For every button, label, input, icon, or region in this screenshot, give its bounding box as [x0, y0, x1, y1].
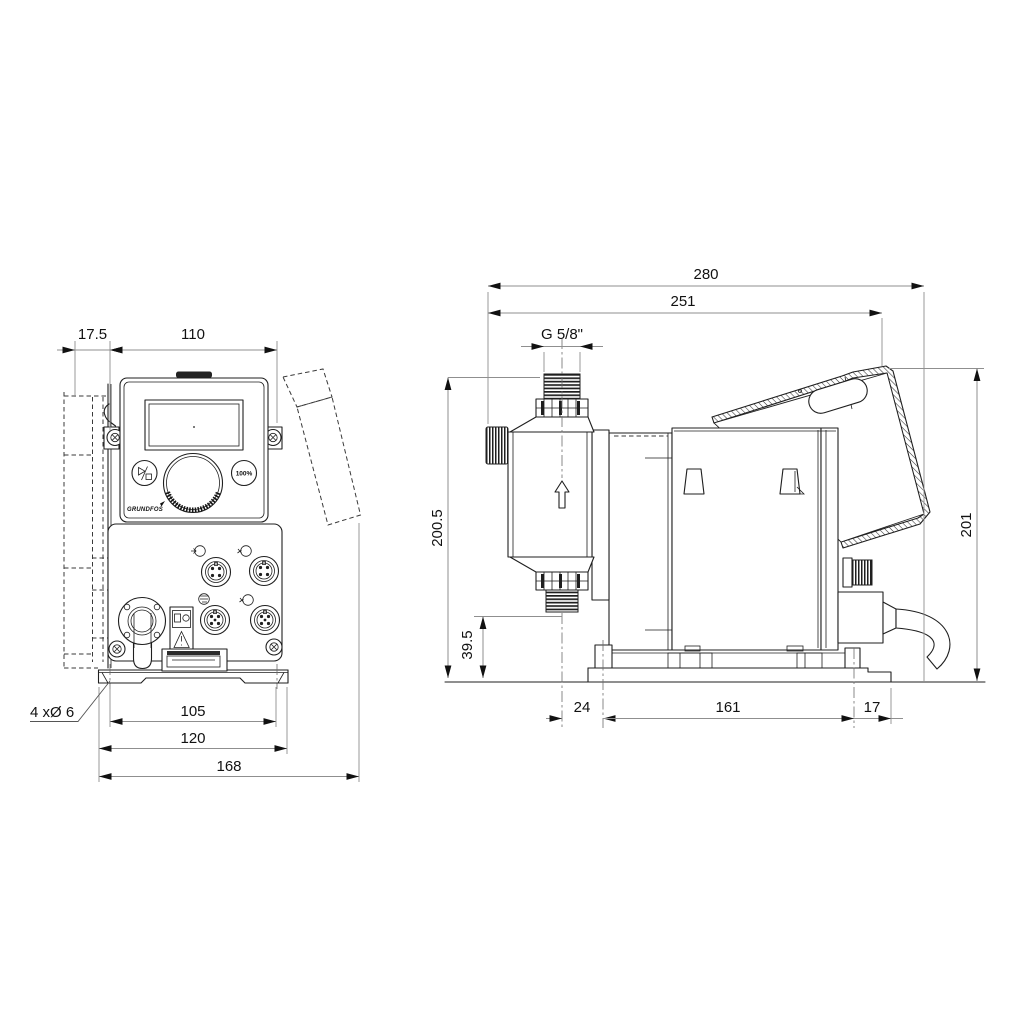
- display: [145, 400, 243, 450]
- panel-top-tab: [176, 372, 212, 379]
- technical-drawing-page: 100% GRUNDFOS 17.5 110 105 120 168 4 xØ …: [0, 0, 1024, 1024]
- front-hole-spacing-dim-label: 105: [180, 703, 205, 720]
- din-rail-clip: [162, 649, 227, 671]
- height-total-dim-label: 200.5: [429, 509, 446, 547]
- m12-connector: [251, 606, 280, 635]
- brand-logo-text: GRUNDFOS: [127, 507, 163, 513]
- center-offset-dim-label: 24: [574, 699, 591, 716]
- m12-connector: [250, 557, 279, 586]
- side-view: 280 251 G 5/8" 200.5 39.5 201 24 161 17: [429, 266, 985, 728]
- front-view: 100% GRUNDFOS 17.5 110 105 120 168 4 xØ …: [30, 326, 361, 782]
- front-total-width-dim-label: 168: [216, 758, 241, 775]
- m12-connector: [201, 606, 230, 635]
- dimensional-drawing: 100% GRUNDFOS 17.5 110 105 120 168 4 xØ …: [0, 0, 1024, 1024]
- cable-gland-cone: [883, 602, 896, 634]
- front-offset-dim-label: 17.5: [78, 326, 107, 343]
- button-100pct[interactable]: 100%: [232, 461, 257, 486]
- front-width-dim-label: 110: [181, 326, 205, 343]
- warning-label-plate: [170, 607, 193, 651]
- priming-knob[interactable]: [486, 427, 508, 464]
- edge-offset-dim-label: 17: [864, 699, 881, 716]
- rear-thread-stub: [852, 560, 872, 585]
- base-hole-spacing-dim-label: 161: [715, 699, 740, 716]
- depth-to-module-dim-label: 251: [670, 293, 695, 310]
- thread-size-label: G 5/8": [541, 326, 583, 343]
- front-plate-width-dim-label: 120: [180, 730, 205, 747]
- mounting-holes-note: 4 xØ 6: [30, 704, 74, 721]
- control-panel: 100% GRUNDFOS: [120, 372, 268, 523]
- terminal-box: [838, 592, 883, 643]
- total-depth-dim-label: 280: [693, 266, 718, 283]
- dosing-head: [486, 374, 609, 612]
- discharge-valve-thread: [546, 590, 578, 612]
- power-cable-side: [896, 609, 950, 669]
- tilted-module-hidden-front: [283, 369, 361, 525]
- mounting-tab: [780, 469, 800, 494]
- m12-connector: [202, 558, 231, 587]
- bottom-coupling-nut: [536, 572, 588, 590]
- start-stop-button[interactable]: [132, 461, 157, 486]
- pump-body-side: [609, 428, 838, 651]
- mounting-tab: [684, 469, 704, 494]
- height-right-dim-label: 201: [958, 512, 975, 537]
- click-wheel[interactable]: [164, 454, 223, 513]
- button-100pct-label: 100%: [236, 471, 253, 478]
- valve-height-dim-label: 39.5: [459, 630, 476, 659]
